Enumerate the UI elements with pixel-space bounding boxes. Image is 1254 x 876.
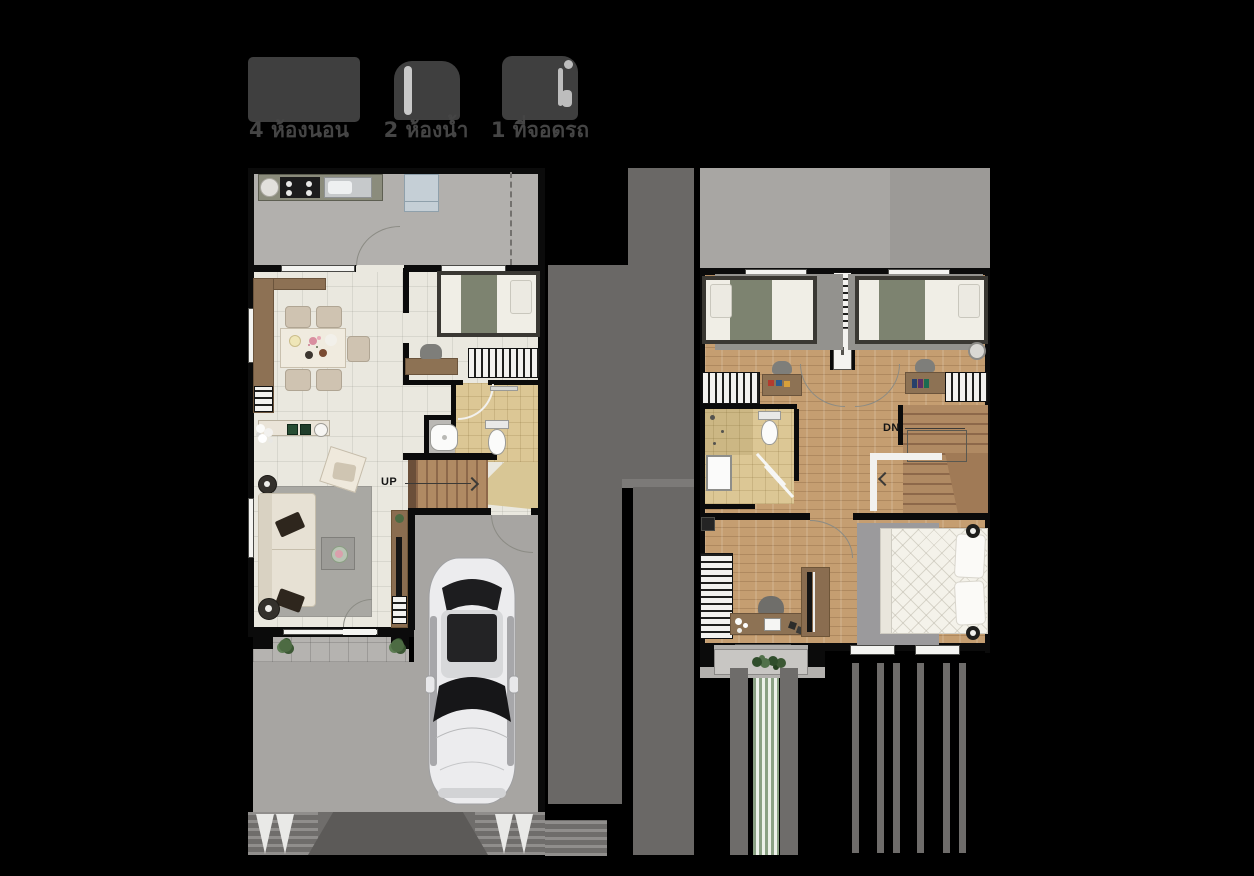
wall-bathroom2-right [794, 409, 799, 481]
master-downlight-2-core [970, 630, 976, 636]
master-tv-edge [813, 572, 815, 632]
toilet-2-tank [758, 411, 781, 420]
master-window-2 [915, 645, 960, 655]
divider-slab-main [548, 265, 694, 487]
master-downlight-1-core [970, 528, 976, 534]
summary-header: 4 ห้องนอน 2 ห้องน้ำ 1 ที่จอดรถ [0, 0, 1254, 150]
fence-post-3 [893, 663, 900, 853]
side-table-1 [258, 475, 277, 494]
master-flowers [735, 618, 742, 625]
bedroom3-desk-items [912, 379, 917, 388]
car-icon [502, 56, 578, 120]
terrace-plant-2 [391, 639, 404, 652]
fence-post-6 [959, 663, 966, 853]
car [426, 556, 518, 806]
bedroom3-chair [915, 359, 935, 372]
sideboard [258, 420, 330, 436]
shower-head-dots [710, 415, 715, 420]
bedroom2-chair [772, 361, 792, 374]
stairs-up-arrow-line [405, 483, 471, 484]
dining-plates [289, 335, 301, 347]
console-shelf [392, 596, 407, 624]
stairs-down-line [905, 428, 965, 429]
stove [280, 177, 320, 198]
dining-chair-3 [285, 369, 311, 391]
kitchen-door-gap [356, 265, 404, 272]
side-table-2 [258, 598, 280, 620]
bedroom2-wardrobe [702, 372, 760, 404]
wall-garage-top-a [408, 508, 491, 515]
bedroom1-wardrobe [468, 348, 540, 378]
stove-burners [286, 181, 292, 187]
sink-basin [328, 181, 352, 194]
sofa-seam [272, 549, 315, 550]
path-post-left [730, 668, 748, 855]
wall-bathroom1-left [451, 385, 456, 430]
dining-table [280, 328, 346, 368]
master-tv-screen [807, 572, 812, 632]
dining-bench [347, 336, 370, 362]
toilet-1-bowl [488, 429, 506, 455]
master-downlight-2 [966, 626, 980, 640]
fence-post-2 [877, 663, 884, 853]
dining-chair-2 [316, 306, 342, 328]
dining-chair-1 [285, 306, 311, 328]
wall-garage-living [408, 508, 415, 630]
lounge-chair-cushion [332, 462, 357, 483]
microwave-shelf [254, 386, 273, 412]
car-icon-light [562, 90, 572, 107]
garden-path [753, 678, 779, 855]
driveway-floor [253, 662, 414, 812]
toilet-1 [485, 420, 509, 456]
wall-bathroom1-top-b [488, 380, 541, 385]
car-icon-mirror [564, 60, 573, 69]
balcony-planter [752, 657, 762, 667]
bedrooms-count-label: 4 ห้องนอน [238, 114, 360, 147]
wall-bathroom2-top [700, 404, 797, 409]
master-pillow-1 [954, 533, 986, 579]
balcony-stub-left [700, 645, 714, 667]
balcony-stub-right [808, 645, 825, 667]
driveway-apron [308, 812, 488, 855]
master-downlight-1 [966, 524, 980, 538]
refrigerator [404, 174, 439, 212]
path-post-right [780, 668, 798, 855]
wash-basin [430, 424, 458, 451]
bedroom2-blanket [730, 280, 772, 340]
fence-post-1 [852, 663, 859, 853]
bathroom2-sink [706, 455, 732, 491]
master-desk-papers [788, 621, 797, 630]
kitchen-plate [260, 178, 279, 197]
fence-post-4 [917, 663, 924, 853]
terrace-stub-left [253, 637, 273, 649]
bed-icon [248, 57, 360, 122]
bedroom2-desk-items [768, 380, 774, 386]
shower-icon-detail [404, 66, 412, 115]
floorplan-page: { "page": {"background": "#000000"}, "su… [0, 0, 1254, 876]
master-laptop [764, 618, 781, 631]
coffee-table-dessert [335, 550, 343, 558]
divider-slab-right [633, 487, 694, 855]
dining-chair-4 [316, 369, 342, 391]
master-window-1 [850, 645, 895, 655]
divider-slab-top [628, 168, 694, 267]
wash-basin-drain [442, 435, 447, 440]
roof-deck-right [890, 168, 990, 268]
bedroom3-blanket [879, 280, 925, 340]
bedroom3-wardrobe [945, 372, 988, 402]
tv-plant [395, 514, 404, 523]
bedroom3-ball-chair [968, 342, 986, 360]
side-table-2-flower [265, 605, 272, 612]
entry-door-gap [343, 629, 376, 635]
wall-bedroom1-left-a [403, 268, 409, 313]
bedroom2-bed [702, 276, 817, 344]
toilet-1-tank [485, 420, 509, 429]
staircase-up-edge [408, 460, 416, 512]
roof-deck-left [700, 168, 890, 268]
divider-ramp [545, 820, 607, 856]
bedroom2-pillow [710, 284, 732, 318]
dining-flowers [309, 337, 317, 345]
sofa-back [259, 494, 272, 606]
coffee-table-plate [331, 546, 348, 563]
dish-cluster [256, 424, 265, 433]
refrigerator-divider [405, 201, 438, 202]
sofa [258, 493, 316, 607]
fence-post-5 [943, 663, 950, 853]
wall-stairs1-top [403, 453, 497, 460]
master-tv-panel [801, 567, 830, 637]
first-floor-plan: UP [248, 168, 545, 855]
master-bed [880, 528, 988, 634]
left-wall-window-2 [248, 498, 254, 558]
bedroom1-pillow [510, 280, 532, 314]
coffee-machine-1 [287, 424, 298, 435]
coffee-machine-2 [300, 424, 311, 435]
kitchen-dashed-line [510, 172, 512, 265]
bathroom1-towel-bar [490, 386, 518, 391]
master-desk [730, 613, 810, 635]
bedroom2-desk [762, 374, 802, 396]
toilet-2 [758, 411, 782, 447]
master-dresser [701, 517, 715, 531]
wall-garage-top-b [531, 508, 541, 515]
second-floor-plan: DN [700, 168, 990, 855]
wall-master-top-a [700, 513, 810, 520]
bedroom3-bed [855, 276, 988, 344]
divider-slab-left [548, 487, 622, 804]
coffee-table [321, 537, 355, 570]
wall-master-top-b [853, 513, 990, 520]
bedroom1-chair [420, 344, 442, 359]
master-pillow-2 [954, 580, 986, 626]
parking-count-label: 1 ที่จอดรถ [482, 114, 598, 147]
toilet-2-bowl [761, 420, 778, 445]
stairs-up-label: UP [381, 476, 397, 488]
master-bed-fold [881, 529, 892, 633]
stairs-down-label: DN [883, 422, 900, 434]
side-table-1-flower [264, 481, 270, 487]
terrace-plant-1 [279, 639, 292, 652]
bedroom1-bed [437, 271, 540, 337]
bedroom1-blanket [461, 275, 497, 333]
terrace-floor [253, 637, 409, 662]
wall-bathroom2-bottom [700, 504, 755, 509]
shower-icon [394, 61, 460, 120]
bathrooms-count-label: 2 ห้องน้ำ [370, 114, 482, 147]
sideboard-jar [314, 423, 328, 437]
sofa-pillow-1 [275, 511, 306, 537]
bedroom3-desk [905, 372, 947, 394]
kitchen-sink [324, 177, 372, 198]
bedroom3-pillow [958, 284, 980, 318]
bedroom1-desk [405, 358, 458, 375]
kitchen-window [281, 265, 355, 272]
master-wardrobe [700, 553, 733, 639]
shower-zone [700, 409, 752, 455]
